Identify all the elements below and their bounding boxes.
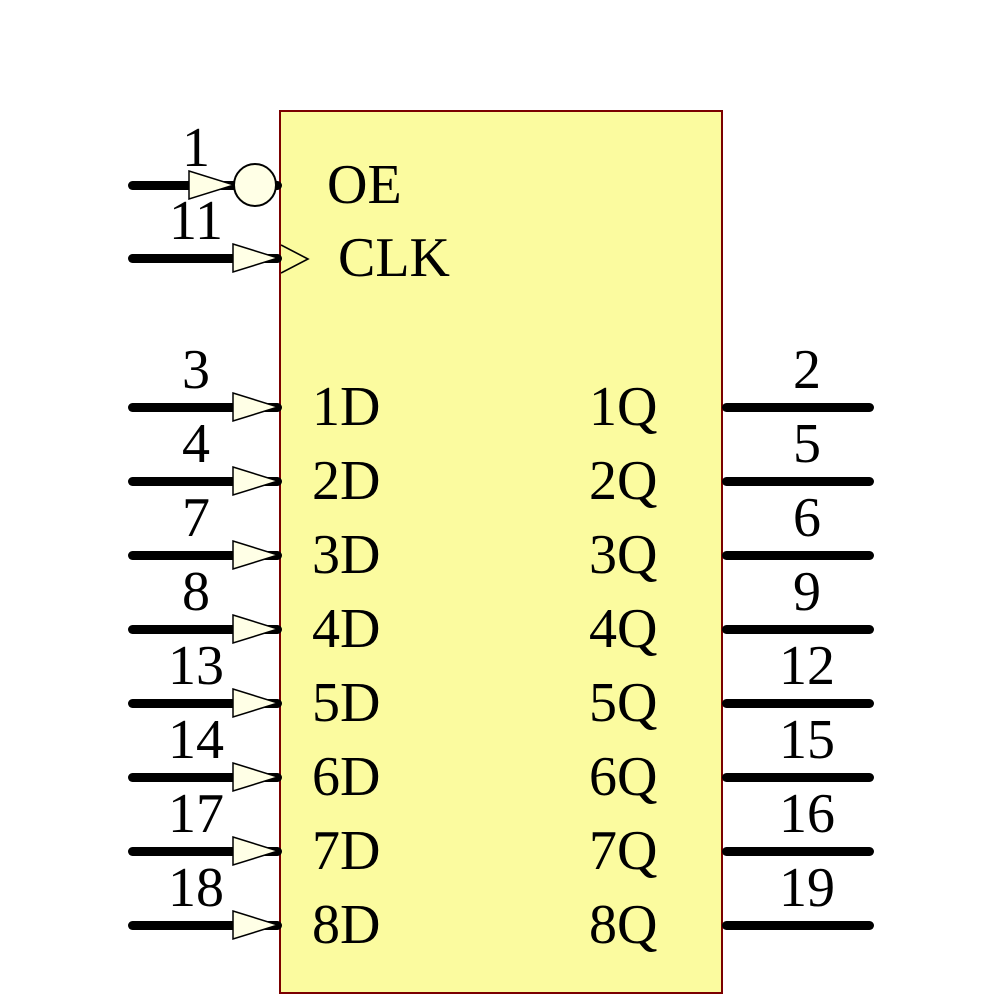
- pin-label-7d: 7D: [312, 823, 380, 879]
- pin-number-8d: 18: [136, 860, 256, 916]
- pin-label-5d: 5D: [312, 675, 380, 731]
- pin-label-2q: 2Q: [589, 453, 657, 509]
- pin-label-1d: 1D: [312, 379, 380, 435]
- pin-number-4d: 8: [136, 564, 256, 620]
- pin-wire-5q: [722, 699, 874, 708]
- input-arrow-icon: [232, 242, 280, 274]
- pin-label-4d: 4D: [312, 601, 380, 657]
- pin-number-clk: 11: [136, 193, 256, 249]
- pin-number-1d: 3: [136, 342, 256, 398]
- pin-number-7q: 16: [747, 786, 867, 842]
- pin-number-3q: 6: [747, 490, 867, 546]
- pin-number-7d: 17: [136, 786, 256, 842]
- pin-wire-6q: [722, 773, 874, 782]
- pin-wire-2q: [722, 477, 874, 486]
- pin-label-6d: 6D: [312, 749, 380, 805]
- pin-number-oe: 1: [136, 120, 256, 176]
- pin-label-7q: 7Q: [589, 823, 657, 879]
- pin-wire-1q: [722, 403, 874, 412]
- pin-label-4q: 4Q: [589, 601, 657, 657]
- pin-label-oe: OE: [327, 157, 402, 213]
- pin-label-1q: 1Q: [589, 379, 657, 435]
- pin-label-8d: 8D: [312, 897, 380, 953]
- schematic-canvas: 1 OE 11 CLK 3 1D 4 2D 7 3D 8 4D 13 5D 14…: [0, 0, 1000, 1000]
- pin-number-6d: 14: [136, 712, 256, 768]
- input-arrow-icon: [232, 909, 280, 941]
- clock-edge-icon: [281, 244, 311, 274]
- pin-label-5q: 5Q: [589, 675, 657, 731]
- pin-number-3d: 7: [136, 490, 256, 546]
- pin-label-clk: CLK: [338, 230, 450, 286]
- pin-number-2q: 5: [747, 416, 867, 472]
- pin-wire-7q: [722, 847, 874, 856]
- pin-number-6q: 15: [747, 712, 867, 768]
- pin-number-1q: 2: [747, 342, 867, 398]
- pin-wire-8q: [722, 921, 874, 930]
- pin-wire-3q: [722, 551, 874, 560]
- pin-number-8q: 19: [747, 860, 867, 916]
- pin-label-6q: 6Q: [589, 749, 657, 805]
- pin-label-3q: 3Q: [589, 527, 657, 583]
- pin-wire-4q: [722, 625, 874, 634]
- pin-number-5q: 12: [747, 638, 867, 694]
- pin-label-3d: 3D: [312, 527, 380, 583]
- pin-number-2d: 4: [136, 416, 256, 472]
- pin-label-2d: 2D: [312, 453, 380, 509]
- pin-number-5d: 13: [136, 638, 256, 694]
- pin-label-8q: 8Q: [589, 897, 657, 953]
- pin-number-4q: 9: [747, 564, 867, 620]
